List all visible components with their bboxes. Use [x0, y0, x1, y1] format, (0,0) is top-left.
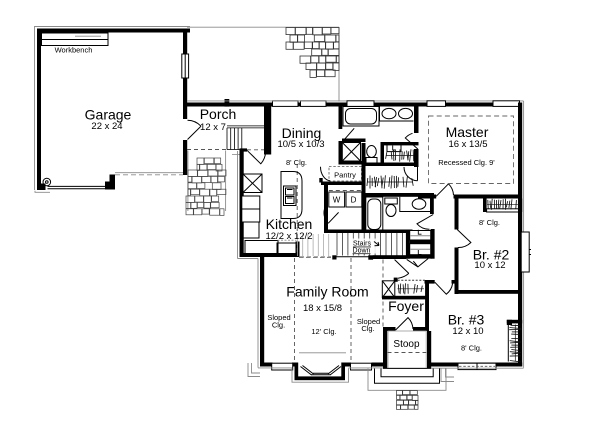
svg-text:D: D: [351, 196, 357, 205]
svg-text:22 x 24: 22 x 24: [91, 121, 122, 132]
svg-text:Family Room: Family Room: [286, 284, 368, 300]
svg-text:Pantry: Pantry: [334, 170, 356, 179]
svg-text:Clg.: Clg.: [272, 321, 285, 330]
svg-text:Recessed Clg. 9': Recessed Clg. 9': [438, 158, 495, 167]
svg-text:W: W: [333, 196, 341, 205]
svg-text:Porch: Porch: [200, 106, 237, 122]
svg-text:Workbench: Workbench: [55, 45, 93, 54]
svg-text:Master: Master: [446, 124, 489, 140]
svg-text:12 x 10: 12 x 10: [452, 326, 483, 337]
svg-text:18 x 15/8: 18 x 15/8: [303, 303, 342, 314]
svg-text:16 x 13/5: 16 x 13/5: [448, 139, 487, 150]
svg-text:8' Clg.: 8' Clg.: [479, 218, 500, 227]
svg-text:Kitchen: Kitchen: [266, 216, 313, 232]
svg-text:12/2 x 12/2: 12/2 x 12/2: [265, 231, 312, 242]
svg-text:12 x 7: 12 x 7: [200, 122, 226, 133]
svg-text:12' Clg.: 12' Clg.: [311, 327, 336, 336]
svg-text:Clg.: Clg.: [361, 324, 374, 333]
svg-text:10/5 x 10/3: 10/5 x 10/3: [277, 139, 324, 150]
svg-text:Foyer: Foyer: [388, 298, 424, 314]
svg-text:Stoop: Stoop: [393, 339, 420, 350]
svg-text:Down: Down: [353, 247, 371, 254]
svg-text:8' Clg.: 8' Clg.: [461, 343, 482, 352]
svg-text:8' Clg.: 8' Clg.: [286, 158, 307, 167]
svg-text:10 x 12: 10 x 12: [474, 260, 505, 271]
